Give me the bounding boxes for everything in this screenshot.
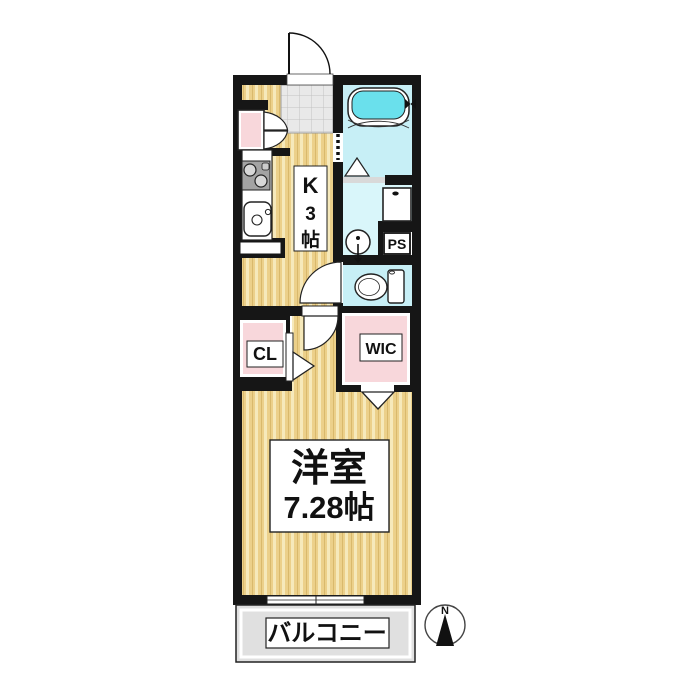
wall-cl-bottom [233,381,292,391]
wall-washer-ps [378,221,412,232]
kitchen-fixtures [242,150,272,240]
kitchen-label: K 3 帖 [294,166,327,251]
shoe-cabinet-fill [241,113,261,147]
genkan-tile-floor [281,85,333,133]
cl-door-leaf [286,333,293,381]
kitchen-label-jo: 帖 [301,228,320,251]
balcony-label: バルコニー [267,620,387,647]
bath-step [343,177,385,183]
compass-rose-icon: N [425,605,465,646]
entrance-door-arc-icon [289,33,330,74]
cl-label: CL [253,344,277,364]
washbasin-faucet-dot [356,236,360,240]
stove-burner-1 [244,164,256,176]
western-room-name: 洋室 [291,447,367,490]
wall-ps-left [378,221,383,255]
kitchen-label-3: 3 [305,204,316,225]
floor-plan: CL WIC [0,0,700,700]
entrance [287,33,333,85]
entrance-sill [287,74,333,85]
wic-door-gap [361,384,394,392]
western-room-label: 洋室 7.28帖 [270,440,389,532]
sink-faucet [265,209,270,214]
balcony: バルコニー [236,605,415,662]
counter-end-opening [241,243,280,253]
stove-burner-2 [255,175,267,187]
floor-plan-canvas: CL WIC [0,0,700,700]
wall-wash-toilet [333,255,412,265]
toilet-tank [388,270,404,303]
sink-drain [252,215,262,225]
bathtub-icon [352,91,405,119]
bedroom-door-leaf [302,306,338,316]
wall-bath-wash [385,175,412,185]
western-room-size: 7.28帖 [283,490,374,525]
stove-knob [262,163,269,170]
bedroom-window [267,596,364,604]
wic-label: WIC [365,341,397,358]
kitchen-label-k: K [303,173,319,198]
wall-cabinet-top [233,100,268,110]
toilet-icon [355,274,387,300]
ps-label: PS [388,236,407,252]
washer-faucet-dot [392,192,398,196]
